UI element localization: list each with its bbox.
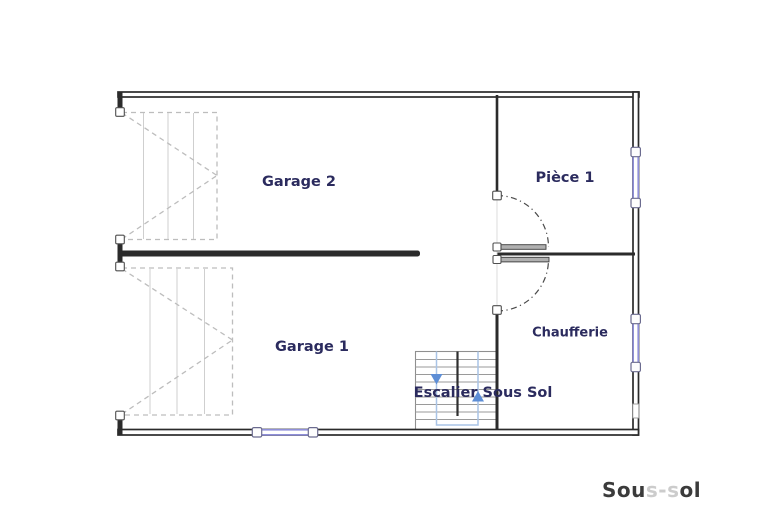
window-handle: [631, 198, 640, 207]
garage-door-2: [122, 113, 217, 240]
wall-garage-divider: [118, 251, 420, 257]
room-label-garage-2: Garage 2: [262, 174, 336, 190]
room-label-chaufferie: Chaufferie: [532, 326, 608, 341]
hinge-marker: [116, 235, 125, 244]
wall-center-lower: [496, 309, 499, 430]
floor-title-faded-part: s-s: [646, 478, 680, 502]
hinge-marker: [493, 306, 502, 315]
floorplan-drawing: [0, 0, 783, 526]
room-label-escalier-sous-sol: Escalier Sous Sol: [414, 385, 553, 401]
floor-title-part: ol: [680, 478, 702, 502]
wall-notch: [633, 404, 639, 418]
floor-title-sous-sol: Sous-sol: [602, 478, 701, 502]
hinge-marker: [116, 108, 125, 117]
hinge-marker: [493, 243, 501, 251]
window-handle: [631, 362, 640, 371]
window-handle: [308, 428, 317, 437]
door-leaf-piece1: [500, 245, 546, 250]
window-bottom: [257, 430, 313, 435]
room-label-piece-1: Pièce 1: [536, 170, 595, 186]
hinge-marker: [116, 411, 125, 420]
window-handle: [631, 314, 640, 323]
floorplan-basement: Garage 2 Pièce 1 Garage 1 Chaufferie Esc…: [0, 0, 783, 526]
floor-title-part: Sou: [602, 478, 646, 502]
garage-door-1: [122, 268, 233, 415]
hinge-marker: [493, 256, 501, 264]
door-arc-piece1: [497, 196, 549, 248]
wall-top: [118, 92, 639, 97]
wall-right: [633, 92, 639, 435]
door-leaf-chaufferie: [500, 257, 549, 262]
wall-piece1-chaufferie: [497, 253, 635, 256]
hinge-marker: [116, 262, 125, 271]
wall-bottom: [118, 430, 639, 436]
hinge-marker: [493, 191, 502, 200]
window-right-lower: [633, 319, 638, 367]
door-arc-chaufferie: [497, 260, 549, 312]
window-handle: [631, 147, 640, 156]
room-label-garage-1: Garage 1: [275, 339, 349, 355]
window-handle: [252, 428, 261, 437]
window-right-upper: [633, 152, 638, 203]
walls: [118, 92, 640, 435]
wall-center-upper: [496, 95, 499, 195]
